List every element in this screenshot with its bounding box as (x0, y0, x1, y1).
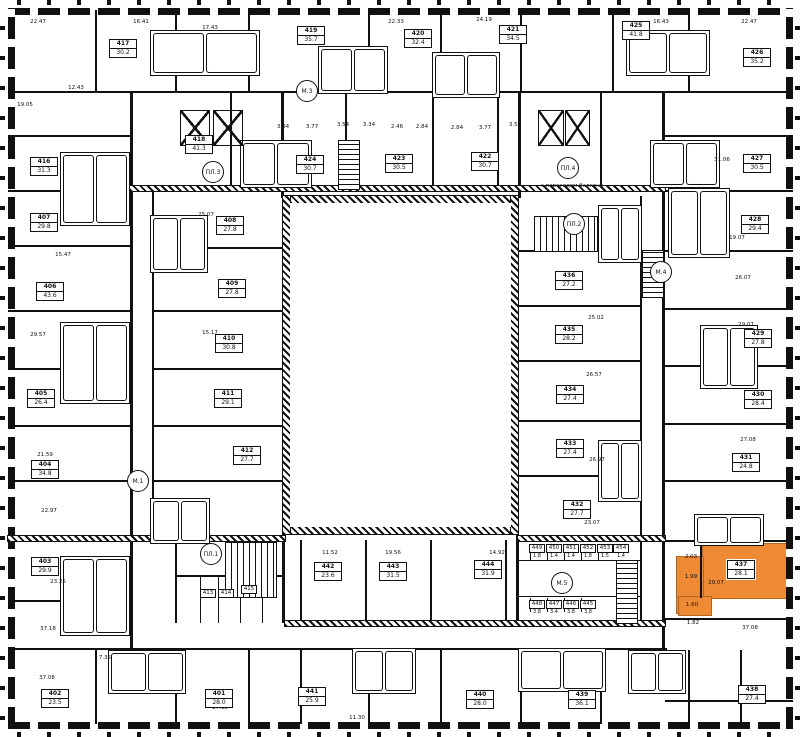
unit-number: 424 (297, 156, 323, 164)
unit-label: 40643.6 (36, 282, 64, 301)
wall (665, 308, 793, 310)
unit-area: 30.7 (472, 161, 498, 170)
unit-area: 27.4 (739, 694, 765, 703)
room-area-label: 3.34 (363, 122, 375, 128)
unit-number: 427 (744, 155, 770, 163)
unit-number: 436 (556, 272, 582, 280)
room-area-label: 25.07 (198, 212, 214, 218)
bathroom-cluster (318, 46, 388, 94)
unit-label: 42829.4 (741, 215, 769, 234)
unit-area: 35.7 (298, 35, 324, 44)
bathroom-cluster (150, 30, 260, 76)
room-area-label: 2.84 (416, 124, 428, 130)
plumbing-fixture-icon (153, 501, 179, 541)
unit-area: 30.5 (744, 163, 770, 172)
bathroom-cluster (108, 650, 186, 694)
unit-label: 43528.2 (555, 325, 583, 344)
unit-label: 43327.4 (556, 439, 584, 458)
unit-area: 30.5 (386, 163, 412, 172)
balcony-ticks-bottom (8, 732, 793, 737)
unit-label: 43028.4 (744, 390, 772, 409)
wall (665, 135, 793, 137)
unit-label: 42134.5 (499, 25, 527, 44)
unit-number: 431 (733, 454, 759, 462)
room-area-label: 2.46 (391, 124, 403, 130)
unit-number: 438 (739, 686, 765, 694)
wall (218, 577, 219, 623)
wall (248, 650, 250, 724)
unit-area: 41.8 (623, 30, 649, 39)
bathroom-cluster (432, 52, 500, 98)
plumbing-fixture-icon (206, 33, 257, 73)
plumbing-fixture-icon (96, 559, 127, 633)
room-area-label: 26.97 (589, 457, 605, 463)
wall (152, 425, 283, 427)
wall (8, 425, 130, 427)
unit-number: 406 (37, 283, 63, 291)
bathroom-cluster (60, 556, 130, 636)
wall (518, 360, 640, 362)
plumbing-fixture-icon (697, 517, 728, 543)
unit-number: 421 (500, 26, 526, 34)
balcony-ticks-right (795, 8, 800, 729)
stair-elevator-marker: М.4 (650, 261, 672, 283)
room-area-label: 24.19 (476, 17, 492, 23)
room-area-label: 3.84 (277, 124, 289, 130)
storage-number-label: 451 (563, 544, 579, 553)
hatched-wall (283, 196, 518, 203)
bathroom-cluster (598, 440, 642, 502)
bathroom-cluster (60, 322, 130, 404)
room-area-label: 3.54 (509, 122, 521, 128)
plumbing-fixture-icon (385, 651, 413, 691)
wall (8, 480, 130, 482)
unit-area: 31.9 (475, 569, 501, 578)
room-area-label: 23.07 (584, 520, 600, 526)
wall (175, 537, 177, 623)
room-area-label: 37.18 (40, 626, 56, 632)
unit-area: 27.8 (217, 225, 243, 234)
stair-elevator-marker: М.5 (551, 572, 573, 594)
unit-label: 42330.5 (385, 154, 413, 173)
room-area-label: 37.08 (742, 625, 758, 631)
plumbing-fixture-icon (703, 328, 728, 386)
storage-number-label: 448 (529, 600, 545, 609)
wall (130, 91, 133, 650)
bathroom-cluster (518, 648, 606, 692)
unit-number: 426 (744, 49, 770, 57)
storage-number-label: 450 (546, 544, 562, 553)
unit-number: 419 (298, 27, 324, 35)
room-area-label: 19.07 (729, 235, 745, 241)
room-area-label: 14.92 (489, 550, 505, 556)
unit-area: 31.5 (380, 571, 406, 580)
wall (700, 543, 702, 598)
unit-area: 23.5 (42, 698, 68, 707)
storage-area-label: 1.8 (584, 553, 592, 559)
floor-plan-canvas: с переходом балкона 41730.241935.742032.… (0, 0, 800, 737)
storage-area-label: 1.5 (601, 553, 609, 559)
unit-number: 409 (219, 280, 245, 288)
unit-area: 31.3 (31, 166, 57, 175)
unit-area: 28.0 (206, 698, 232, 707)
unit-label: 42541.8 (622, 21, 650, 40)
plumbing-fixture-icon (563, 651, 603, 689)
wall (518, 305, 640, 307)
unit-number: 437 (728, 561, 754, 569)
unit-number: 404 (32, 461, 58, 469)
storage-number-label: 446 (563, 600, 579, 609)
unit-label: 41227.7 (233, 446, 261, 465)
room-area-label: 3.54 (337, 122, 349, 128)
room-area-label: 22.33 (388, 19, 404, 25)
unit-number: 430 (745, 391, 771, 399)
room-area-label: 2.03 (685, 554, 697, 560)
hatched-wall (518, 536, 665, 541)
wall (505, 540, 507, 623)
room-area-label: 11.30 (349, 715, 365, 721)
room-area-label: 1.60 (686, 602, 698, 608)
unit-area: 27.8 (745, 338, 771, 347)
plumbing-fixture-icon (601, 443, 619, 499)
storage-number-label: 454 (613, 544, 629, 553)
unit-number: 407 (31, 214, 57, 222)
unit-area: 29.8 (31, 222, 57, 231)
unit-label: 41935.7 (297, 26, 325, 45)
unit-area: 43.6 (37, 291, 63, 300)
wall (200, 577, 201, 623)
storage-area-label: 3.8 (584, 609, 592, 615)
storage-number-label: 445 (580, 600, 596, 609)
unit-area: 26.4 (28, 398, 54, 407)
unit-number: 443 (380, 563, 406, 571)
exterior-wall-right (786, 8, 793, 729)
plumbing-fixture-icon (180, 218, 205, 270)
courtyard (290, 203, 511, 527)
room-number-label: 415 (241, 585, 257, 594)
plumbing-fixture-icon (354, 49, 385, 91)
bathroom-cluster (650, 140, 720, 188)
hatched-wall (511, 196, 518, 534)
plumbing-fixture-icon (631, 653, 656, 691)
unit-number: 429 (745, 330, 771, 338)
balcony-ticks-left (0, 8, 5, 729)
room-area-label: 31.06 (714, 157, 730, 163)
unit-label: 41129.1 (214, 389, 242, 408)
bathroom-cluster (668, 188, 730, 258)
unit-area: 41.3 (186, 144, 212, 153)
room-area-label: 7.35 (99, 655, 111, 661)
plumbing-fixture-icon (730, 517, 761, 543)
wall (8, 91, 793, 93)
unit-number: 433 (557, 440, 583, 448)
room-area-label: 21.59 (37, 452, 53, 458)
plumbing-fixture-icon (521, 651, 561, 689)
wall (282, 533, 285, 623)
unit-label: 41631.3 (30, 157, 58, 176)
wall (152, 480, 283, 482)
unit-label: 43227.7 (563, 500, 591, 519)
unit-number: 432 (564, 501, 590, 509)
unit-area: 28.2 (556, 334, 582, 343)
unit-label: 42730.5 (743, 154, 771, 173)
stair-elevator-marker: ПЛ.3 (202, 161, 224, 183)
bathroom-cluster (150, 498, 210, 544)
exterior-wall-bottom (8, 722, 793, 729)
room-area-label: 2.84 (451, 125, 463, 131)
room-area-label: 19.05 (17, 102, 33, 108)
unit-number: 423 (386, 155, 412, 163)
unit-label: 44125.9 (298, 687, 326, 706)
unit-number: 439 (569, 691, 595, 699)
elevator-icon (213, 110, 243, 146)
plumbing-fixture-icon (601, 208, 619, 260)
unit-area: 28.1 (728, 569, 754, 578)
unit-label: 41730.2 (109, 39, 137, 58)
unit-label: 40827.8 (216, 216, 244, 235)
unit-label: 42430.7 (296, 155, 324, 174)
room-area-label: 3.77 (306, 124, 318, 130)
bathroom-cluster (598, 205, 642, 263)
wall (95, 650, 97, 724)
wall (8, 245, 130, 247)
unit-number: 405 (28, 390, 54, 398)
wall (365, 540, 367, 623)
wall (688, 650, 690, 724)
unit-number: 402 (42, 690, 68, 698)
unit-number: 412 (234, 447, 260, 455)
unit-label: 42230.7 (471, 152, 499, 171)
room-area-label: 16.41 (133, 19, 149, 25)
unit-label: 41030.8 (215, 334, 243, 353)
bathroom-cluster (352, 648, 416, 694)
elevator-icon (565, 110, 590, 146)
room-area-label: 17.43 (202, 25, 218, 31)
wall (152, 310, 283, 312)
room-area-label: 27.08 (740, 437, 756, 443)
plumbing-fixture-icon (658, 653, 683, 691)
plumbing-fixture-icon (669, 33, 707, 73)
storage-number-label: 453 (597, 544, 613, 553)
room-area-label: 12.43 (68, 85, 84, 91)
unit-label: 40128.0 (205, 689, 233, 708)
room-area-label: 19.56 (385, 550, 401, 556)
stair-elevator-marker: М.3 (296, 80, 318, 102)
unit-label: 42927.8 (744, 329, 772, 348)
room-area-label: 22.47 (741, 19, 757, 25)
plumbing-fixture-icon (467, 55, 497, 95)
unit-number: 416 (31, 158, 57, 166)
wall (440, 650, 442, 724)
unit-label: 40729.8 (30, 213, 58, 232)
unit-label: 42635.2 (743, 48, 771, 67)
wall (665, 618, 793, 620)
unit-label: 43124.8 (732, 453, 760, 472)
storage-area-label: 1.4 (550, 553, 558, 559)
bathroom-cluster (60, 152, 130, 226)
unit-label: 43427.4 (556, 385, 584, 404)
storage-area-label: 3.8 (567, 609, 575, 615)
unit-area: 30.8 (216, 343, 242, 352)
plumbing-fixture-icon (148, 653, 183, 691)
plumbing-fixture-icon (671, 191, 698, 255)
unit-label: 43827.4 (738, 685, 766, 704)
room-area-label: 11.52 (322, 550, 338, 556)
stair-transition-note: с переходом балкона (541, 183, 603, 189)
plumbing-fixture-icon (653, 143, 684, 185)
room-area-label: 23.25 (50, 579, 66, 585)
room-number-label: 413 (200, 589, 216, 598)
wall (640, 537, 642, 623)
plumbing-fixture-icon (686, 143, 717, 185)
wall (152, 368, 283, 370)
unit-number: 417 (110, 40, 136, 48)
wall (95, 10, 97, 91)
unit-area: 27.7 (564, 509, 590, 518)
storage-area-label: 1.4 (567, 553, 575, 559)
unit-area: 30.2 (110, 48, 136, 57)
room-area-label: 25.02 (588, 315, 604, 321)
plumbing-fixture-icon (621, 443, 639, 499)
storage-number-label: 452 (580, 544, 596, 553)
storage-number-label: 447 (546, 600, 562, 609)
plumbing-fixture-icon (700, 191, 727, 255)
wall (497, 91, 499, 188)
unit-number: 440 (467, 691, 493, 699)
wall (8, 135, 130, 137)
room-area-label: 29.57 (30, 332, 46, 338)
unit-area: 29.1 (215, 398, 241, 407)
unit-number: 444 (475, 561, 501, 569)
wall (516, 533, 519, 623)
plumbing-fixture-icon (153, 218, 178, 270)
unit-area: 35.2 (744, 57, 770, 66)
unit-area: 27.4 (557, 448, 583, 457)
stair-elevator-marker: ПЛ.2 (563, 213, 585, 235)
wall (665, 423, 793, 425)
unit-area: 28.4 (745, 399, 771, 408)
unit-area: 30.7 (297, 164, 323, 173)
unit-label: 44223.6 (314, 562, 342, 581)
wall (518, 420, 640, 422)
unit-area: 27.4 (557, 394, 583, 403)
unit-number: 435 (556, 326, 582, 334)
wall (665, 700, 793, 702)
wall (432, 91, 434, 188)
wall (300, 540, 302, 623)
unit-area: 24.8 (733, 462, 759, 471)
storage-number-label: 449 (529, 544, 545, 553)
unit-label: 44028.0 (466, 690, 494, 709)
storage-area-label: 3.4 (550, 609, 558, 615)
unit-number: 418 (186, 136, 212, 144)
hatched-wall (283, 196, 290, 534)
unit-area: 28.0 (467, 699, 493, 708)
unit-number: 403 (32, 558, 58, 566)
room-area-label: 37.08 (39, 675, 55, 681)
wall (665, 480, 793, 482)
hatched-wall (283, 527, 518, 534)
unit-number: 441 (299, 688, 325, 696)
unit-label: 40329.9 (31, 557, 59, 576)
unit-number: 428 (742, 216, 768, 224)
bathroom-cluster (628, 650, 686, 694)
storage-area-label: 3.8 (533, 609, 541, 615)
unit-number: 425 (623, 22, 649, 30)
selected-unit-label[interactable]: 43728.1 (727, 560, 755, 579)
plumbing-fixture-icon (63, 559, 94, 633)
room-area-label: 22.47 (30, 19, 46, 25)
unit-number: 422 (472, 153, 498, 161)
unit-label: 41841.3 (185, 135, 213, 154)
stairs-icon (616, 560, 638, 624)
room-area-label: 1.99 (685, 574, 697, 580)
unit-label: 40434.8 (31, 460, 59, 479)
storage-area-label: 1.8 (533, 553, 541, 559)
unit-area: 23.6 (315, 571, 341, 580)
hatched-wall (8, 536, 285, 541)
unit-number: 411 (215, 390, 241, 398)
stair-elevator-marker: М.1 (127, 470, 149, 492)
unit-label: 40526.4 (27, 389, 55, 408)
room-area-label: 16.43 (653, 19, 669, 25)
plumbing-fixture-icon (96, 325, 127, 401)
unit-area: 29.4 (742, 224, 768, 233)
bathroom-cluster (150, 215, 208, 273)
hatched-wall (285, 621, 665, 626)
unit-label: 43936.1 (568, 690, 596, 709)
unit-area: 27.2 (556, 280, 582, 289)
unit-area: 29.9 (32, 566, 58, 575)
wall (8, 310, 130, 312)
unit-area: 25.9 (299, 696, 325, 705)
stair-elevator-marker: ПЛ.4 (557, 157, 579, 179)
unit-label: 44431.9 (474, 560, 502, 579)
exterior-wall-top (8, 8, 793, 15)
unit-label: 40223.5 (41, 689, 69, 708)
unit-number: 434 (557, 386, 583, 394)
room-area-label: 29.07 (708, 580, 724, 586)
room-area-label: 15.47 (55, 252, 71, 258)
unit-area: 34.8 (32, 469, 58, 478)
room-number-label: 414 (218, 589, 234, 598)
plumbing-fixture-icon (321, 49, 352, 91)
unit-label: 44331.5 (379, 562, 407, 581)
room-area-label: 29.07 (738, 322, 754, 328)
unit-area: 27.7 (234, 455, 260, 464)
unit-label: 42032.4 (404, 29, 432, 48)
plumbing-fixture-icon (153, 33, 204, 73)
plumbing-fixture-icon (435, 55, 465, 95)
room-area-label: 26.07 (735, 275, 751, 281)
unit-area: 27.8 (219, 288, 245, 297)
elevator-icon (538, 110, 564, 146)
bathroom-cluster (694, 514, 764, 546)
stairs-icon (338, 140, 360, 190)
plumbing-fixture-icon (181, 501, 207, 541)
unit-number: 408 (217, 217, 243, 225)
room-area-label: 3.77 (479, 125, 491, 131)
unit-number: 401 (206, 690, 232, 698)
wall (518, 91, 521, 198)
room-area-label: 22.97 (41, 508, 57, 514)
plumbing-fixture-icon (621, 208, 639, 260)
plumbing-fixture-icon (63, 155, 94, 223)
room-area-label: 26.57 (586, 372, 602, 378)
storage-area-label: 1.4 (617, 553, 625, 559)
plumbing-fixture-icon (111, 653, 146, 691)
wall (600, 91, 602, 188)
